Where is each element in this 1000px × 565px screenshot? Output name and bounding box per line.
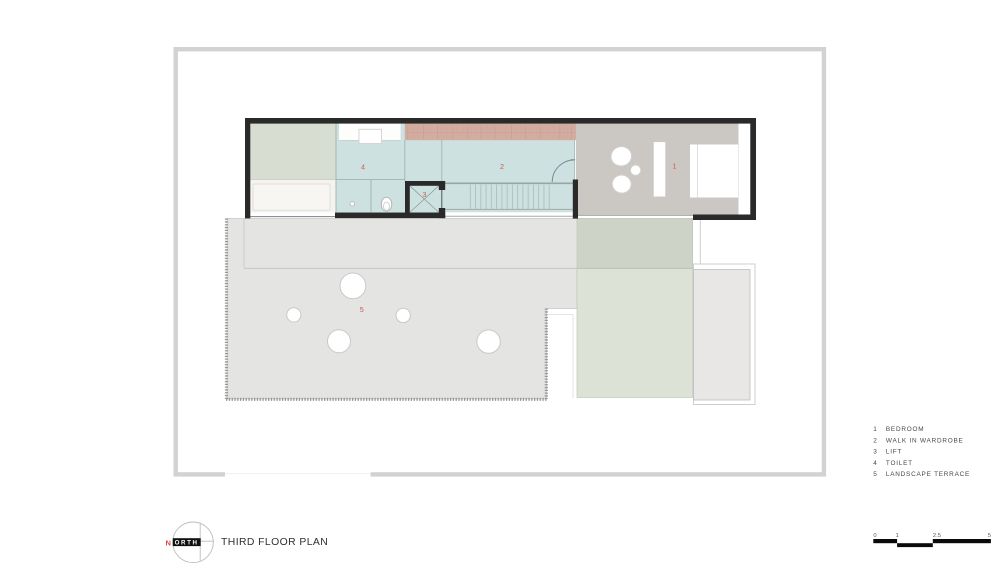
svg-text:BEDROOM: BEDROOM — [886, 426, 924, 433]
svg-text:4: 4 — [361, 163, 365, 172]
svg-text:N: N — [166, 538, 171, 547]
svg-text:5: 5 — [873, 471, 877, 478]
svg-text:1: 1 — [895, 533, 898, 539]
svg-text:WALK IN WARDROBE: WALK IN WARDROBE — [886, 437, 964, 444]
svg-text:5: 5 — [988, 533, 991, 539]
svg-text:2: 2 — [500, 162, 504, 171]
svg-text:0: 0 — [873, 533, 876, 539]
svg-text:5: 5 — [360, 305, 364, 314]
svg-text:THIRD FLOOR PLAN: THIRD FLOOR PLAN — [221, 537, 328, 548]
svg-text:TOILET: TOILET — [886, 460, 913, 467]
svg-text:2.5: 2.5 — [933, 533, 941, 539]
svg-text:4: 4 — [873, 460, 877, 467]
svg-text:LANDSCAPE TERRACE: LANDSCAPE TERRACE — [886, 471, 970, 478]
svg-text:3: 3 — [423, 190, 427, 199]
svg-text:ORTH: ORTH — [175, 540, 199, 547]
svg-text:2: 2 — [873, 437, 877, 444]
svg-text:1: 1 — [873, 426, 877, 433]
svg-text:LIFT: LIFT — [886, 449, 902, 456]
svg-text:3: 3 — [873, 449, 877, 456]
svg-text:1: 1 — [673, 162, 677, 171]
